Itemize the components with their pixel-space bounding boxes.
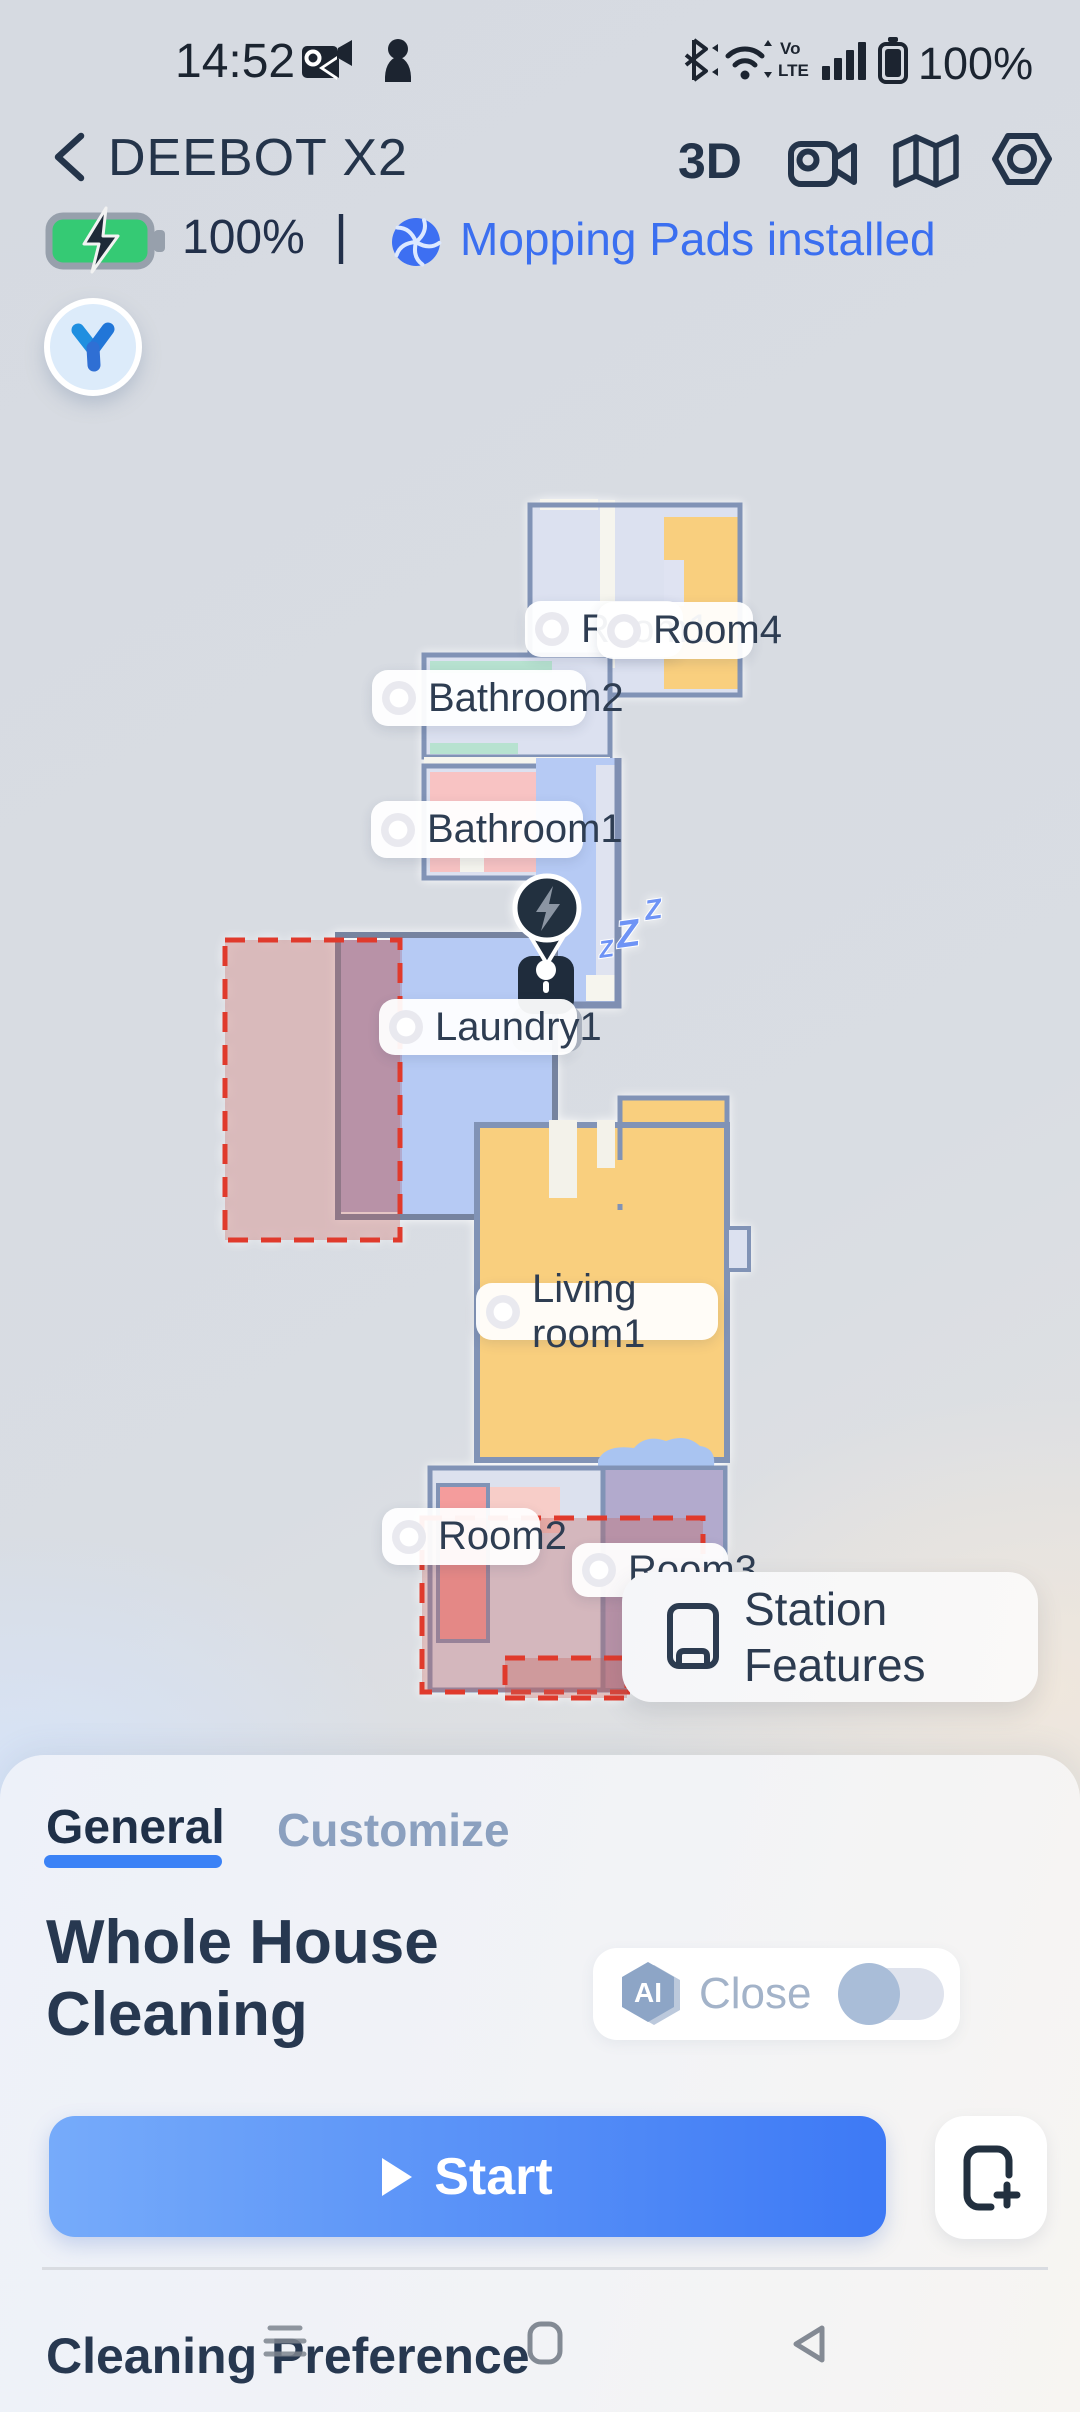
nav-back-icon[interactable] (788, 2322, 830, 2366)
back-icon[interactable] (48, 130, 92, 184)
room-dot-icon (582, 1553, 616, 1587)
tab-active-underline (44, 1855, 222, 1868)
room-pill-room4[interactable]: Room4 (597, 602, 753, 659)
room-label: Room4 (653, 608, 782, 653)
tab-general[interactable]: General (46, 1800, 225, 1855)
status-divider: | (334, 204, 348, 266)
svg-text:Vo: Vo (780, 39, 800, 58)
play-icon (382, 2158, 412, 2196)
room-dot-icon (381, 813, 415, 847)
room-label: Bathroom2 (428, 676, 624, 721)
room-label: Bathroom1 (427, 807, 623, 852)
status-left-icons (302, 36, 442, 88)
sheet-title-line2: Cleaning (46, 1979, 308, 2050)
robot-battery-icon (44, 206, 170, 274)
video-call-icon (302, 40, 352, 80)
nav-recents-icon[interactable] (262, 2320, 308, 2364)
yiko-y-icon (64, 318, 122, 376)
room-dot-icon (389, 1010, 423, 1044)
ai-toggle[interactable] (844, 1968, 944, 2020)
room-label: Living room1 (532, 1267, 702, 1357)
bottom-sheet: General Customize Whole House Cleaning A… (0, 1755, 1080, 2412)
wifi-icon (728, 40, 772, 80)
tab-customize[interactable]: Customize (277, 1803, 510, 1857)
view-3d-button[interactable]: 3D (678, 132, 742, 190)
settings-gear-icon[interactable] (984, 126, 1064, 192)
status-battery-percent: 100% (918, 38, 1033, 90)
nav-home-icon[interactable] (522, 2320, 568, 2366)
ai-mode-control[interactable]: AI Close (593, 1948, 960, 2040)
volte-icon: Vo LTE (778, 39, 809, 80)
map-icon[interactable] (886, 130, 964, 192)
ai-state-label: Close (699, 1969, 812, 2019)
room-dot-icon (486, 1295, 520, 1329)
station-icon (666, 1602, 724, 1672)
tooltip-line1: Station (744, 1581, 926, 1637)
page-title: DEEBOT X2 (108, 128, 408, 188)
voice-assistant-button[interactable] (44, 298, 142, 396)
room-pill-bathroom2[interactable]: Bathroom2 (372, 670, 586, 726)
status-time: 14:52 (175, 34, 295, 89)
add-task-button[interactable] (935, 2116, 1047, 2239)
sheet-title-line1: Whole House (46, 1907, 439, 1978)
status-right-icons: Vo LTE (680, 32, 915, 88)
room-pill-room2[interactable]: Room2 (382, 1508, 540, 1565)
robot-battery-percent: 100% (182, 210, 305, 265)
room-pill-laundry1[interactable]: Laundry1 (379, 999, 577, 1055)
mopping-pad-icon (386, 212, 446, 272)
room-pill-living-room1[interactable]: Living room1 (476, 1283, 718, 1340)
room-label: Room2 (438, 1514, 567, 1559)
room-dot-icon (535, 612, 569, 646)
ai-hexagon-icon: AI (613, 1957, 683, 2031)
no-go-zone-3[interactable] (505, 1658, 627, 1698)
add-task-icon (959, 2143, 1023, 2213)
app-screen: 14:52 Vo LTE (0, 0, 1080, 2412)
station-features-tooltip[interactable]: Station Features (622, 1572, 1038, 1702)
sheet-divider (42, 2267, 1048, 2270)
mopping-status-link[interactable]: Mopping Pads installed (460, 212, 936, 266)
signal-icon (822, 42, 866, 80)
svg-text:LTE: LTE (778, 61, 809, 80)
tooltip-line2: Features (744, 1637, 926, 1693)
video-camera-icon[interactable] (786, 132, 862, 192)
start-button[interactable]: Start (49, 2116, 886, 2237)
room-pill-bathroom1[interactable]: Bathroom1 (371, 801, 583, 858)
privacy-icon (385, 39, 411, 82)
room-dot-icon (382, 681, 416, 715)
ai-toggle-thumb (838, 1963, 900, 2025)
room-label: Laundry1 (435, 1005, 602, 1050)
no-go-zone-1[interactable] (225, 940, 400, 1240)
bluetooth-icon (686, 40, 718, 80)
svg-text:AI: AI (634, 1977, 662, 2008)
svg-text:Z: Z (642, 893, 665, 926)
room-dot-icon (392, 1520, 426, 1554)
start-label: Start (434, 2147, 552, 2207)
battery-icon (880, 37, 906, 82)
room-dot-icon (607, 614, 641, 648)
